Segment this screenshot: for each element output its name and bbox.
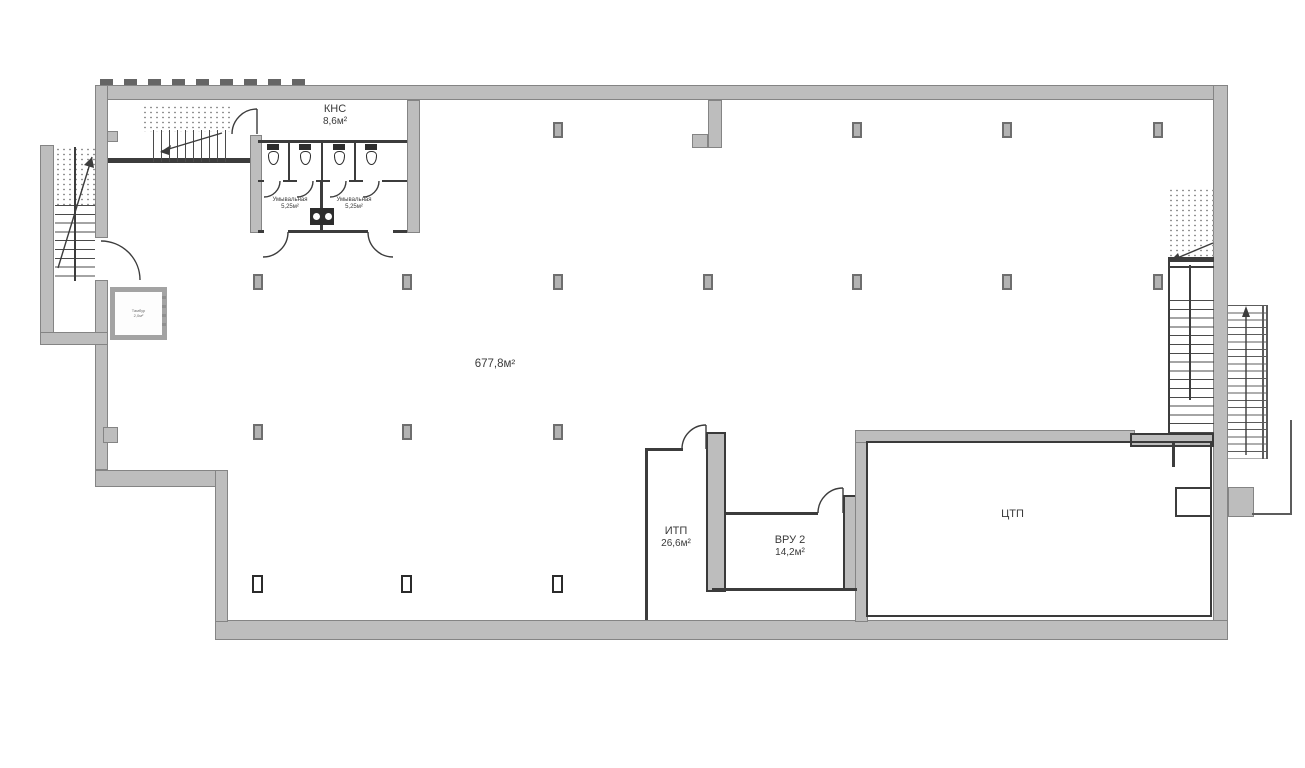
toilet-icon — [332, 144, 346, 169]
stall-divider — [354, 140, 356, 182]
floor-plan: Тамбур 2,0м² КНС 8,6м² Умывальная 5,25м²… — [0, 0, 1305, 768]
stall-front — [258, 180, 264, 182]
stall-front — [349, 180, 363, 182]
vestibule-label: Тамбур 2,0м² — [132, 309, 146, 318]
toilet-icon — [298, 144, 312, 169]
staircase-right-exterior — [1228, 305, 1266, 459]
room-label-vru: ВРУ 2 14,2м² — [740, 534, 840, 558]
ctp-niche-bottom — [1175, 515, 1210, 517]
column — [1153, 122, 1163, 138]
room-label-ctp: ЦТП — [985, 508, 1040, 521]
door-arc-itp — [682, 425, 706, 449]
wall-stub-left — [103, 427, 118, 443]
door-arc-washroom-right — [368, 232, 393, 257]
ctp-room-outline — [866, 441, 1212, 617]
column — [402, 274, 412, 290]
stair-stringer — [74, 147, 76, 281]
door-arc-vru — [818, 488, 843, 513]
column — [253, 274, 263, 290]
door-arc-left-stair — [101, 241, 140, 280]
door-arc-stall — [330, 181, 346, 197]
column — [553, 424, 563, 440]
wall-left-upper — [95, 85, 108, 238]
staircase-corridor — [153, 130, 226, 162]
washroom-bottom-wall — [258, 230, 264, 233]
toilet-icon — [266, 144, 280, 169]
stairwell-edge — [1168, 257, 1170, 433]
door-arc-stall — [363, 181, 379, 197]
wall-exterior-stub — [1228, 487, 1254, 517]
wall-itp-right — [706, 432, 726, 592]
wall-itp-top — [645, 448, 683, 451]
stair-landing-hatch — [142, 105, 232, 132]
stair-stringer — [1189, 265, 1191, 400]
washroom-bottom-wall — [288, 230, 368, 233]
column — [1002, 122, 1012, 138]
column — [553, 122, 563, 138]
column — [1153, 274, 1163, 290]
stall-divider — [321, 140, 323, 182]
room-vestibule: Тамбур 2,0м² — [110, 287, 167, 340]
column — [852, 274, 862, 290]
wall-top — [95, 85, 1228, 100]
stall-front — [316, 180, 330, 182]
wall-step-horizontal — [95, 470, 228, 487]
stair-landing-edge — [1168, 266, 1214, 268]
wall-vru-top — [726, 512, 818, 515]
stair-landing-hatch — [1168, 188, 1214, 258]
column — [703, 274, 713, 290]
wall-pier-foot — [692, 134, 708, 148]
stair-rail — [1266, 305, 1268, 459]
room-label-washroom-left: Умывальная 5,25м² — [262, 197, 318, 211]
ctp-partition-stub — [1172, 443, 1175, 467]
stair-rail — [1262, 305, 1264, 459]
ctp-niche-left — [1175, 487, 1177, 517]
stall-divider — [288, 140, 290, 182]
ctp-niche-top — [1175, 487, 1210, 489]
column — [401, 575, 412, 593]
wall-step-vertical — [215, 470, 228, 622]
door-arc-kns — [232, 109, 257, 134]
door-arc-stall — [264, 181, 280, 197]
stall-front — [382, 180, 407, 182]
column — [1002, 274, 1012, 290]
stair-landing-edge — [1168, 257, 1214, 262]
column — [553, 274, 563, 290]
wall-kns-bottom — [258, 140, 407, 143]
door-arc-stall — [297, 181, 313, 197]
pilaster — [107, 131, 118, 142]
room-label-itp: ИТП 26,6м² — [645, 525, 707, 549]
wall-washroom-right — [407, 100, 420, 233]
room-label-washroom-right: Умывальная 5,25м² — [326, 197, 382, 211]
toilet-icon — [364, 144, 378, 169]
vestibule-door-marks — [162, 296, 166, 332]
room-label-kns: КНС 8,6м² — [280, 103, 390, 127]
wall-stairwell-bottom — [40, 332, 108, 345]
column — [402, 424, 412, 440]
washroom-bottom-wall — [393, 230, 407, 233]
column — [252, 575, 263, 593]
room-label-hall: 677,8м² — [440, 358, 550, 371]
column — [852, 122, 862, 138]
stair-landing-edge — [1290, 420, 1292, 515]
wall-pier-vertical — [708, 100, 722, 148]
wall-bottom — [215, 620, 1228, 640]
wall-washroom-left — [250, 135, 262, 233]
door-arc-washroom-left — [263, 232, 288, 257]
wall-vru-bottom — [712, 588, 857, 591]
stall-front — [283, 180, 297, 182]
wall-stairwell-left — [40, 145, 54, 345]
stair-landing-edge — [1252, 513, 1292, 515]
staircase-right-interior — [1168, 300, 1214, 435]
column — [552, 575, 563, 593]
wall-right — [1213, 85, 1228, 640]
column — [253, 424, 263, 440]
